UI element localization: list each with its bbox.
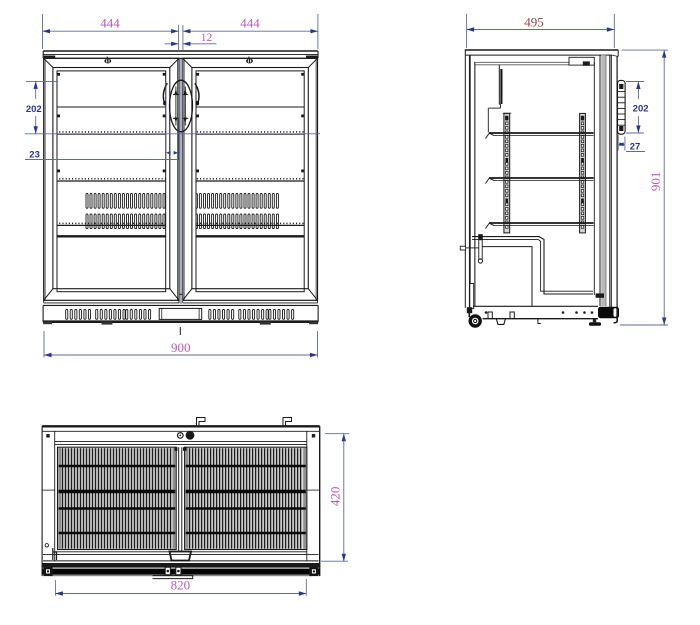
svg-text:495: 495 [524, 15, 544, 30]
svg-text:202: 202 [633, 104, 649, 115]
svg-text:202: 202 [26, 104, 42, 115]
svg-text:12: 12 [201, 32, 213, 44]
svg-text:820: 820 [171, 578, 191, 593]
svg-text:901: 901 [648, 172, 663, 192]
svg-text:23: 23 [29, 150, 40, 161]
svg-text:444: 444 [100, 16, 120, 31]
svg-text:420: 420 [327, 487, 342, 507]
svg-text:900: 900 [171, 340, 191, 355]
svg-text:27: 27 [630, 142, 641, 153]
svg-text:444: 444 [240, 16, 260, 31]
